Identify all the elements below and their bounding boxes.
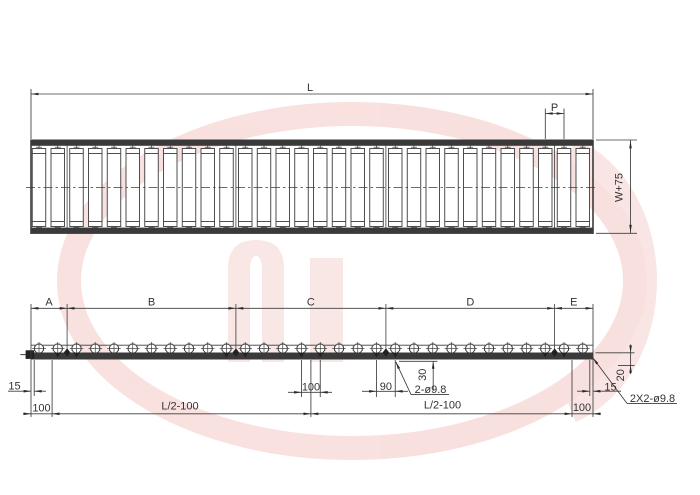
dim-right-half: L/2-100 — [424, 399, 461, 411]
dim-label-pitch: P — [551, 102, 558, 114]
dim-20: 20 — [615, 369, 627, 381]
top-rail-near — [31, 140, 593, 146]
arrowhead — [34, 390, 41, 393]
dim-30: 30 — [417, 369, 429, 381]
arrowhead — [369, 390, 376, 393]
dim-label-length: L — [307, 82, 313, 94]
arrowhead — [304, 413, 311, 416]
arrowhead — [24, 390, 31, 393]
dim-label-frame-width: W+75 — [614, 173, 626, 202]
drawing-canvas: L P W+75 A B C D E 15 100 L/2-100 100 90… — [0, 0, 700, 495]
dim-90: 90 — [380, 381, 392, 393]
arrowhead — [547, 307, 554, 310]
arrowhead — [629, 141, 632, 148]
arrowhead — [52, 413, 59, 416]
arrowhead — [432, 361, 435, 368]
arrowhead — [395, 390, 402, 393]
dim-right-15: 15 — [604, 381, 616, 393]
arrowhead — [555, 307, 562, 310]
section-label-a: A — [45, 297, 53, 309]
end-stop-plate — [26, 350, 35, 359]
note-end-holes: 2X2-ø9.8 — [630, 393, 675, 405]
dim-left-half: L/2-100 — [161, 400, 198, 412]
technical-drawing: L P W+75 A B C D E 15 100 L/2-100 100 90… — [0, 0, 700, 495]
top-rail-far — [31, 228, 593, 234]
dim-mid-100: 100 — [302, 381, 320, 393]
section-label-c: C — [307, 297, 315, 309]
arrowhead — [386, 307, 393, 310]
watermark-letter-arch — [228, 240, 284, 362]
arrowhead — [311, 413, 318, 416]
arrowhead — [379, 307, 386, 310]
top-view — [26, 140, 598, 234]
note-splice-holes: 2-ø9.8 — [415, 384, 447, 396]
arrowhead — [31, 307, 38, 310]
dim-left-100: 100 — [32, 402, 50, 414]
arrowhead — [320, 391, 327, 394]
dim-left-15: 15 — [8, 381, 20, 393]
arrowhead — [586, 93, 593, 96]
arrowhead — [593, 413, 600, 416]
arrowhead — [24, 413, 31, 416]
arrowhead — [565, 413, 572, 416]
section-label-b: B — [148, 297, 155, 309]
arrowhead — [396, 362, 400, 369]
side-rail — [31, 353, 593, 360]
dim-right-100: 100 — [573, 402, 591, 414]
arrowhead — [294, 391, 301, 394]
arrowhead — [31, 93, 38, 96]
arrowhead — [586, 307, 593, 310]
section-label-d: D — [466, 297, 474, 309]
section-label-e: E — [570, 297, 577, 309]
